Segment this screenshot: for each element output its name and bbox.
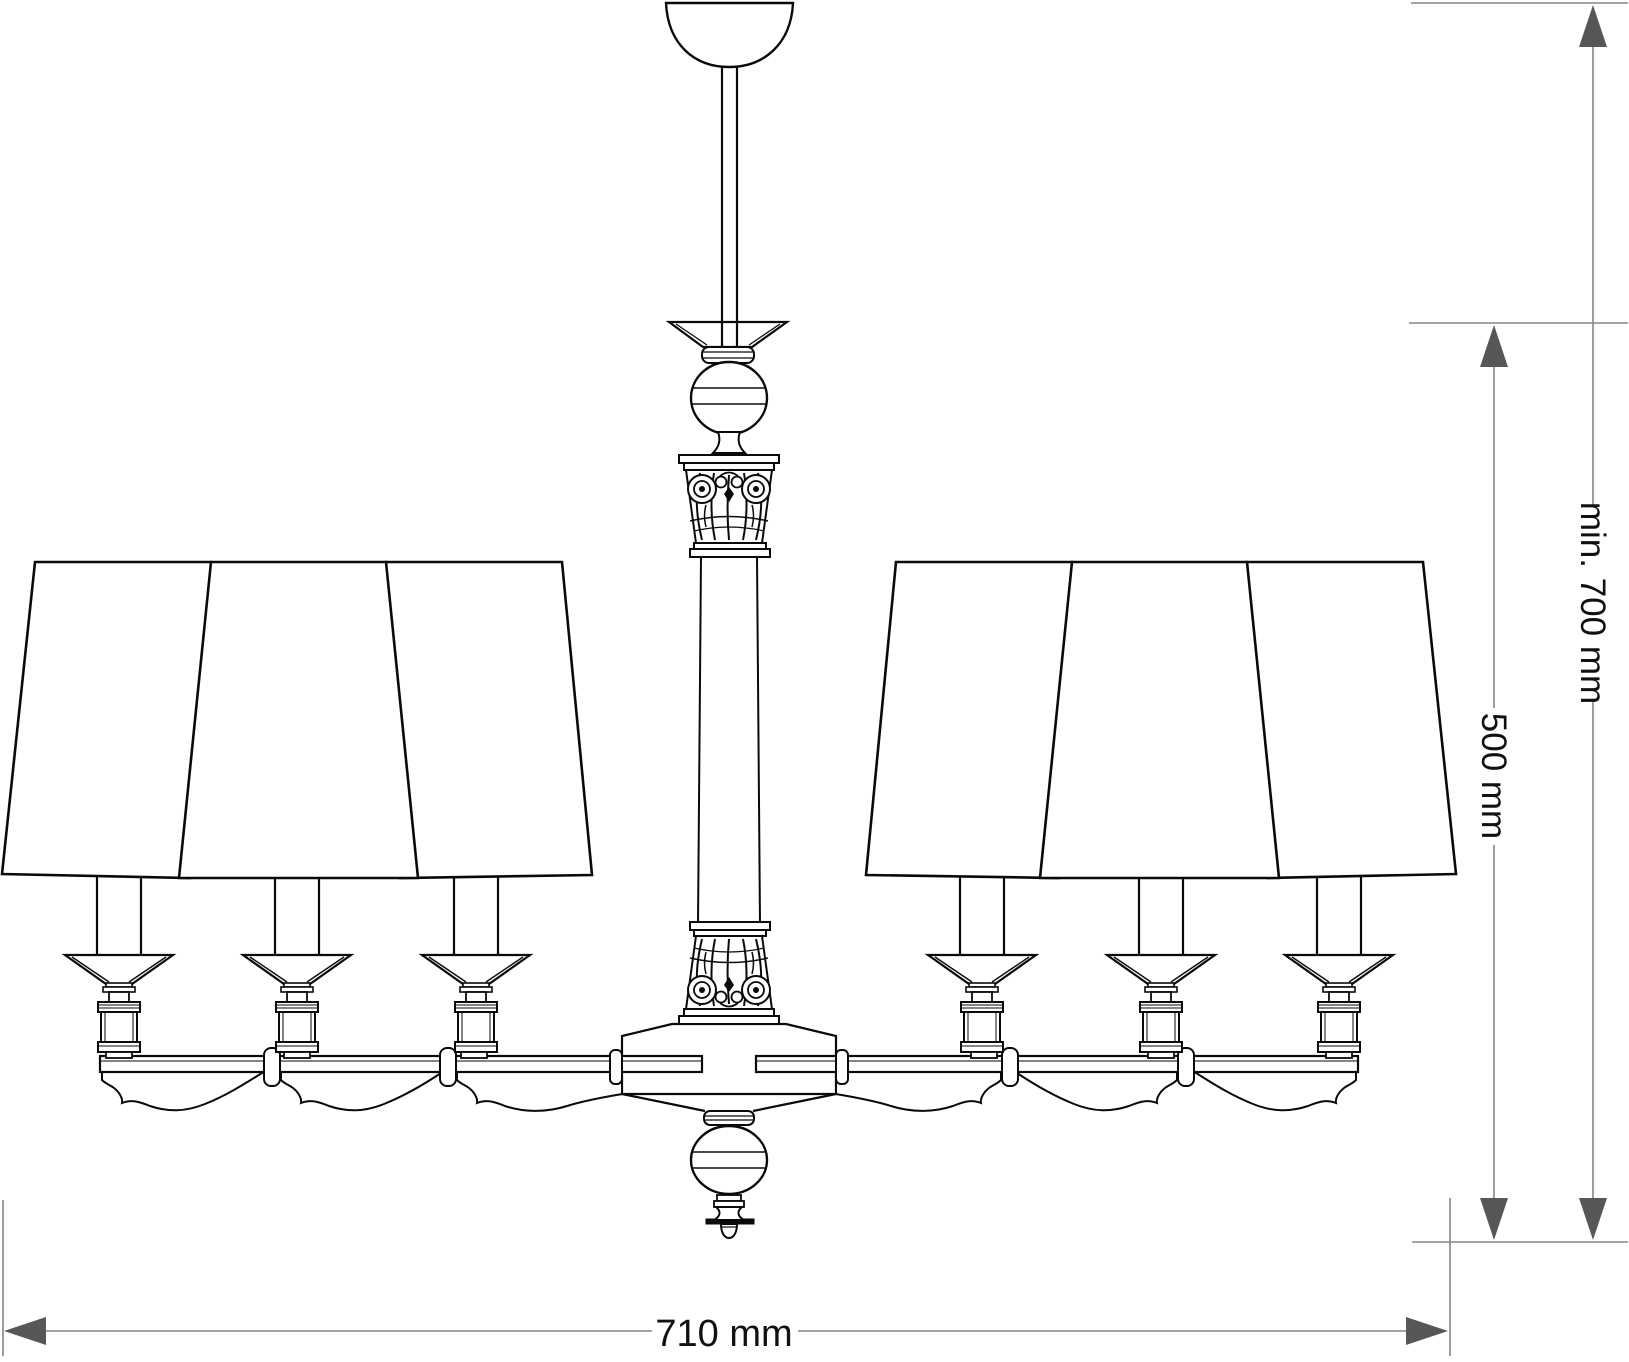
dimension-label: min. 700 mm — [1573, 502, 1612, 704]
ceiling-canopy — [666, 3, 793, 67]
corinthian-capital-upper — [679, 455, 779, 557]
arrowhead-up — [1579, 5, 1607, 47]
arrowhead-down — [1480, 1198, 1508, 1240]
dimension-label: 500 mm — [1474, 713, 1513, 839]
left-arm-assembly — [2, 562, 702, 1111]
chandelier-fixture — [2, 3, 1456, 1238]
upper-ball — [691, 362, 767, 434]
lower-ball — [691, 1126, 767, 1194]
arrowhead-down — [1579, 1198, 1607, 1240]
arrowhead-up — [1480, 325, 1508, 367]
dimension-width: 710 mm — [4, 1313, 1448, 1355]
corinthian-capital-lower — [679, 922, 779, 1024]
hub-neck-collar — [704, 1111, 754, 1125]
dimension-height-body: 500 mm — [1474, 325, 1513, 1240]
hanging-rod — [722, 67, 737, 346]
right-arm-assembly — [756, 562, 1456, 1111]
chandelier-technical-drawing: min. 700 mm 500 mm 710 mm — [0, 0, 1629, 1362]
arrowhead-left — [4, 1317, 46, 1345]
stem-funnel — [669, 322, 787, 347]
upper-pedestal — [713, 432, 745, 453]
bottom-finial — [706, 1195, 754, 1238]
stem-collar — [702, 347, 754, 363]
drawing-canvas: min. 700 mm 500 mm 710 mm — [0, 0, 1629, 1362]
dimension-height-min: min. 700 mm — [1573, 5, 1612, 1240]
arrowhead-right — [1406, 1317, 1448, 1345]
dimension-label: 710 mm — [655, 1313, 792, 1355]
column-shaft — [698, 557, 760, 924]
